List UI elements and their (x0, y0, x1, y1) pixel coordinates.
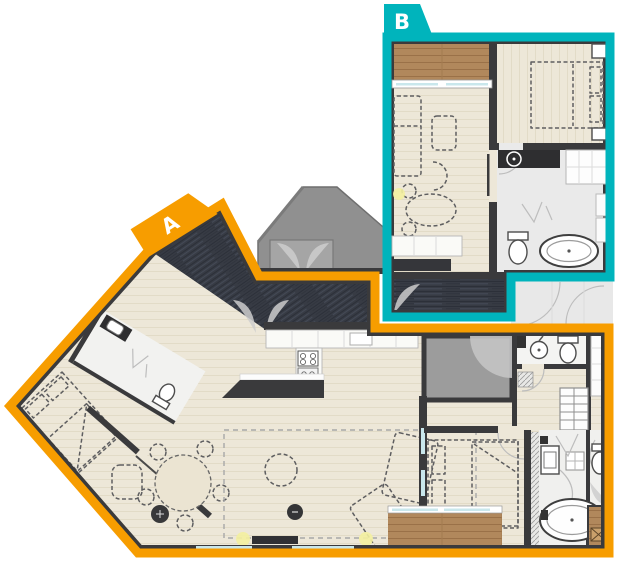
elevator (270, 240, 333, 272)
toilet-fixture (560, 343, 576, 363)
unit-b-area[interactable]: B (384, 4, 610, 317)
unit-a-patio (424, 336, 512, 400)
nightstand (592, 44, 606, 58)
sink-fixture (544, 452, 556, 468)
right-service-pocket (511, 277, 613, 328)
tub-faucet (541, 510, 548, 520)
media-bench (393, 259, 451, 271)
kitchen-island (222, 380, 324, 398)
ceiling-light (359, 532, 373, 546)
hall-closet (560, 388, 588, 430)
floor-plan-page: B (0, 0, 618, 570)
toilet-tank (508, 232, 528, 240)
floor-plan: B (0, 0, 618, 570)
shower-panel (596, 194, 607, 216)
sliding-door-panel (487, 154, 490, 196)
unit-b-living-wall (389, 272, 511, 279)
toilet-fixture (509, 240, 527, 264)
tv-bench (252, 536, 298, 544)
shower-panel (596, 218, 607, 242)
unit-a-bathroom2 (524, 430, 612, 552)
unit-b-balcony-deck (389, 40, 497, 80)
doormat (518, 372, 533, 387)
dining-table (155, 455, 211, 511)
unit-b-window (392, 80, 492, 88)
ceiling-light (236, 532, 250, 546)
sliding-door-gap (489, 150, 497, 202)
bath-door-gap (499, 143, 523, 150)
unit-a-powder-room (516, 332, 586, 368)
kitchen-counter (392, 236, 462, 256)
ceiling-light (393, 188, 405, 200)
unit-b-label-text: B (394, 10, 410, 34)
nightstand (592, 128, 606, 140)
toilet-tank (558, 336, 578, 343)
vanity (517, 335, 526, 348)
